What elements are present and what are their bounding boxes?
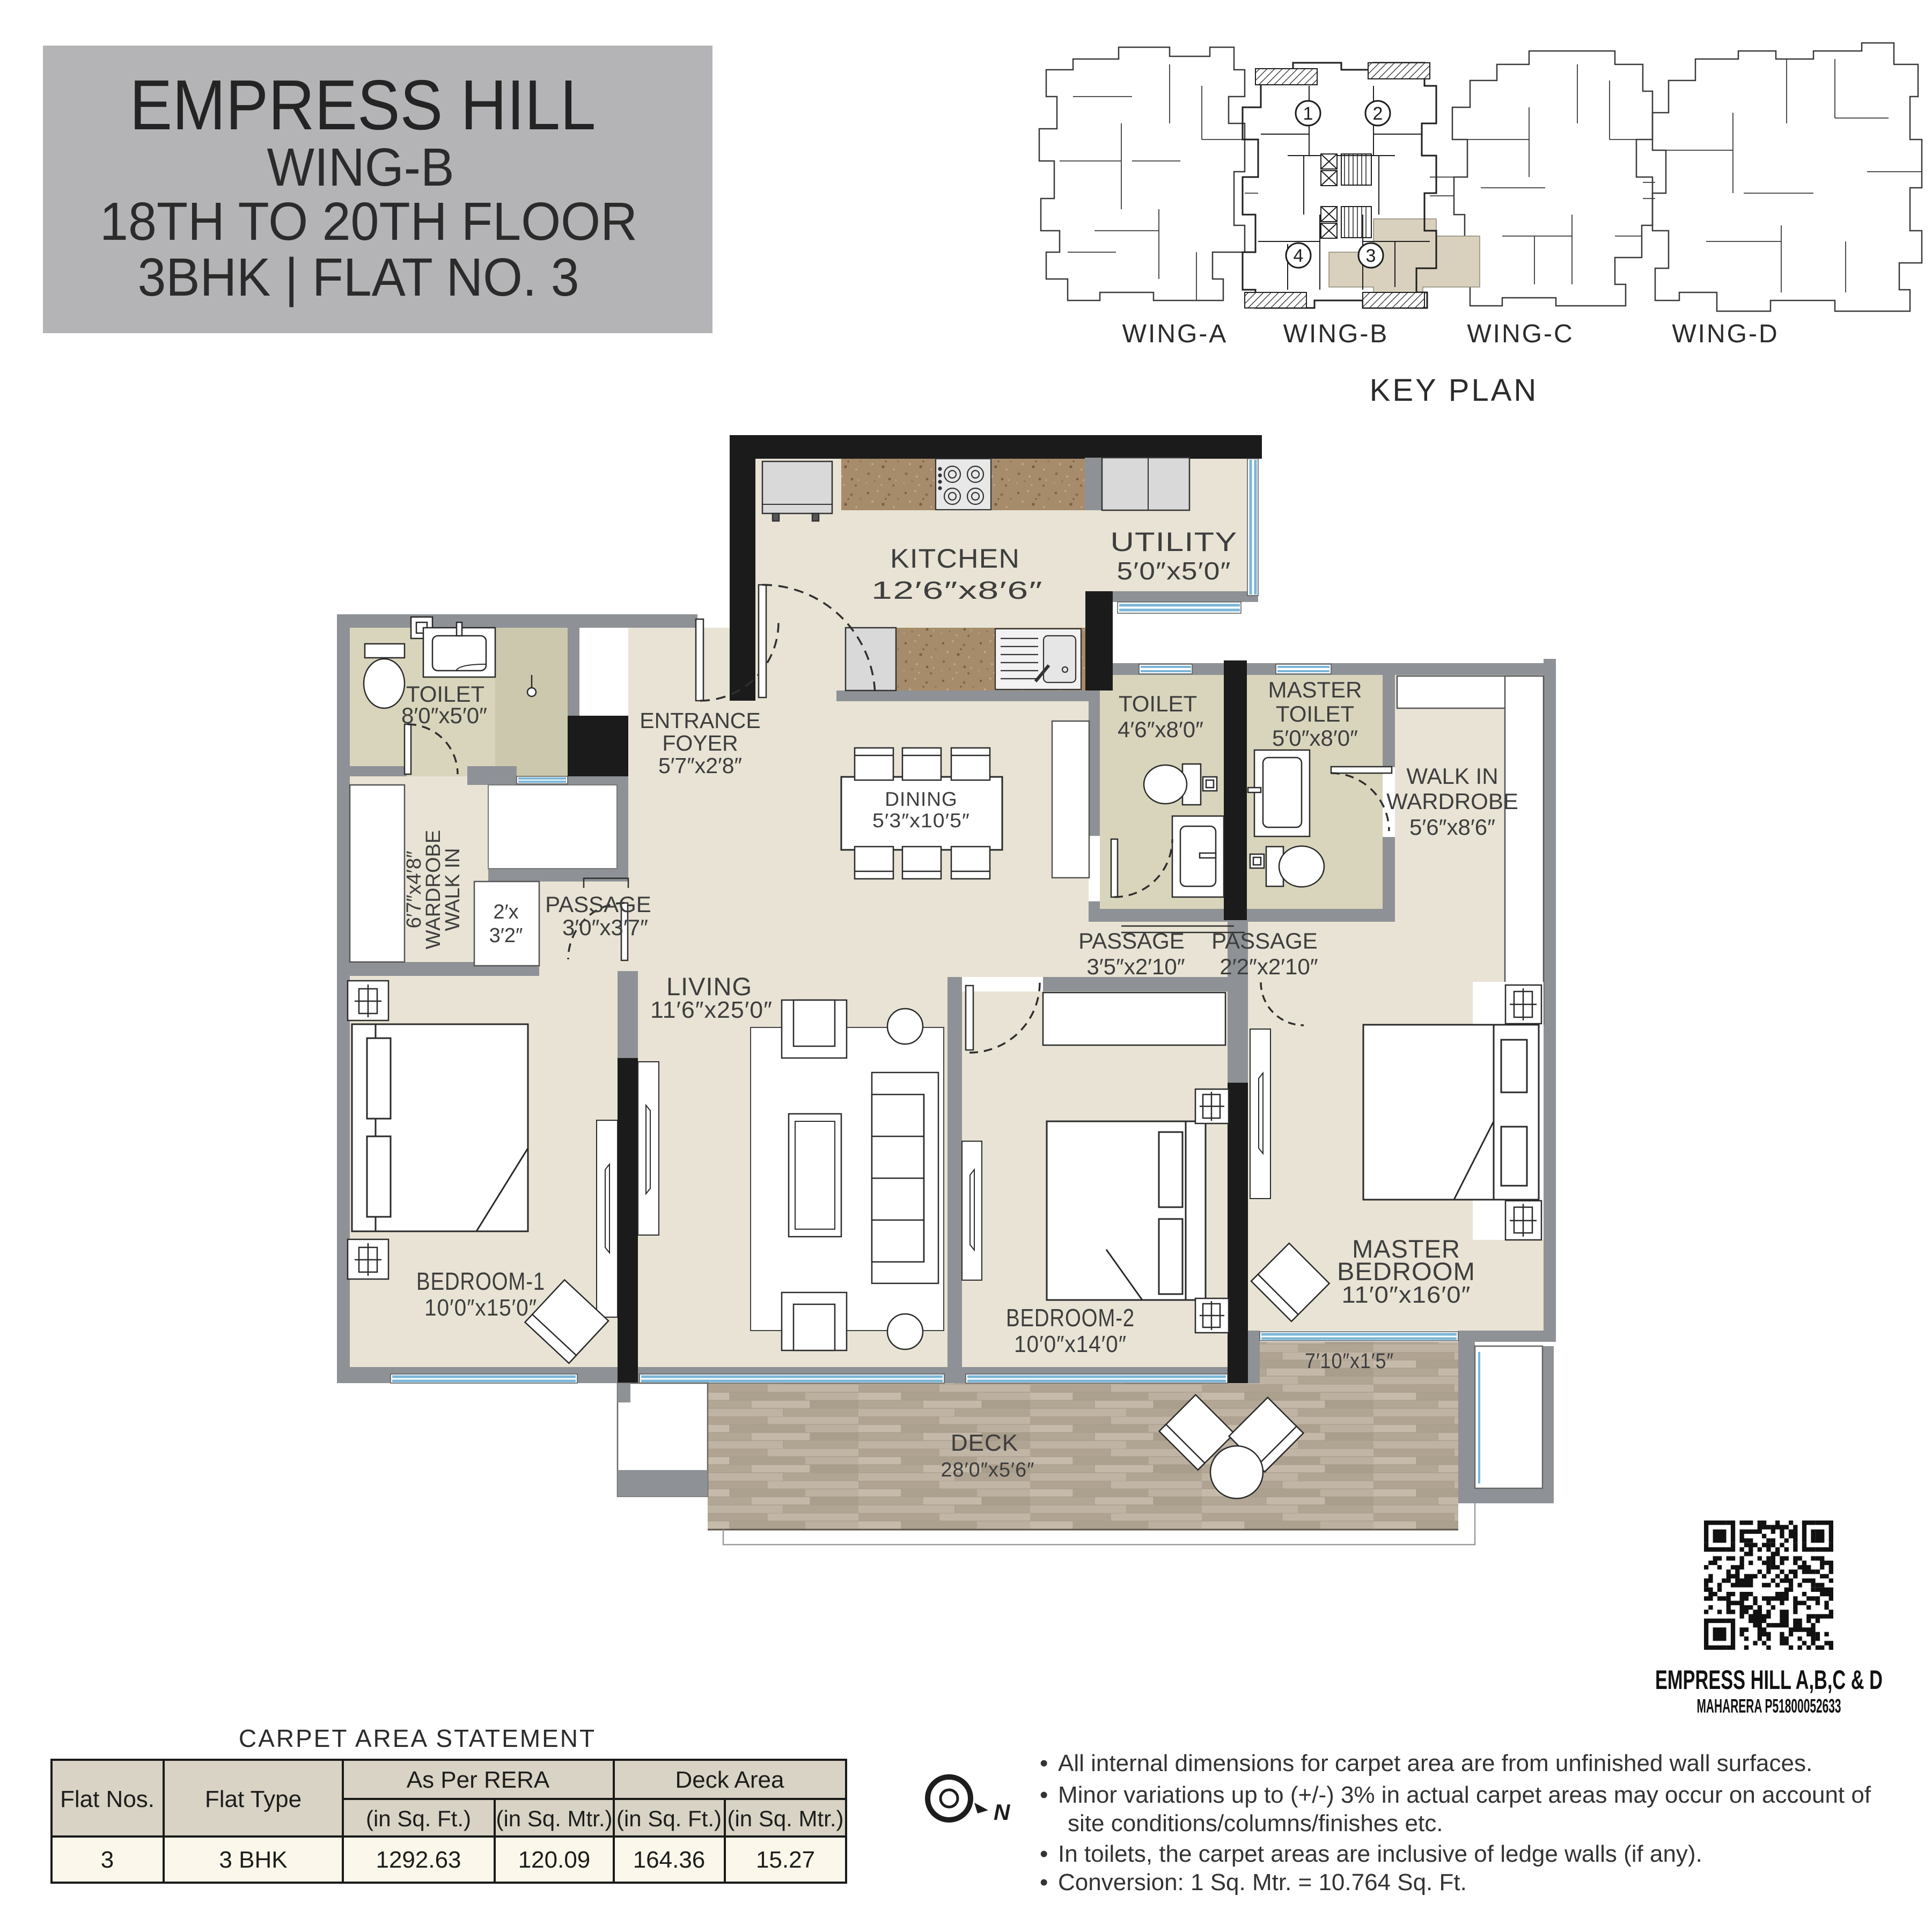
svg-text:3′0″x3′7″: 3′0″x3′7″ <box>562 915 648 940</box>
svg-text:3: 3 <box>101 1847 114 1873</box>
svg-text:6′7″x4′8″: 6′7″x4′8″ <box>403 851 425 929</box>
svg-text:WALK IN: WALK IN <box>1406 763 1498 789</box>
svg-text:CARPET AREA STATEMENT: CARPET AREA STATEMENT <box>239 1724 596 1752</box>
svg-text:MASTER: MASTER <box>1268 677 1362 702</box>
svg-text:FOYER: FOYER <box>662 731 738 755</box>
svg-text:164.36: 164.36 <box>633 1847 706 1873</box>
svg-text:Deck Area: Deck Area <box>675 1767 785 1793</box>
svg-text:•: • <box>1040 1750 1048 1776</box>
svg-text:5′0″x8′0″: 5′0″x8′0″ <box>1272 725 1358 751</box>
svg-text:7′10″x1′5″: 7′10″x1′5″ <box>1305 1349 1394 1373</box>
svg-text:MAHARERA P51800052633: MAHARERA P51800052633 <box>1697 1695 1841 1717</box>
svg-text:2′x: 2′x <box>493 901 518 923</box>
svg-text:3 BHK: 3 BHK <box>219 1847 287 1873</box>
svg-text:15.27: 15.27 <box>756 1847 815 1873</box>
svg-text:EMPRESS HILL A,B,C & D: EMPRESS HILL A,B,C & D <box>1655 1665 1883 1695</box>
svg-text:10′0″x15′0″: 10′0″x15′0″ <box>424 1295 537 1321</box>
svg-text:As Per RERA: As Per RERA <box>407 1767 550 1793</box>
svg-text:•: • <box>1040 1841 1048 1867</box>
svg-text:DECK: DECK <box>951 1430 1018 1456</box>
svg-text:5′0″x5′0″: 5′0″x5′0″ <box>1117 557 1231 585</box>
svg-text:2′2″x2′10″: 2′2″x2′10″ <box>1220 954 1318 979</box>
svg-text:Flat Type: Flat Type <box>205 1786 302 1812</box>
svg-text:5′3″x10′5″: 5′3″x10′5″ <box>872 810 970 832</box>
svg-text:Flat Nos.: Flat Nos. <box>60 1786 155 1812</box>
svg-text:(in Sq. Ft.): (in Sq. Ft.) <box>366 1806 471 1831</box>
svg-text:PASSAGE: PASSAGE <box>1211 928 1318 953</box>
svg-text:WING-B: WING-B <box>267 137 454 197</box>
svg-text:1292.63: 1292.63 <box>376 1847 461 1873</box>
svg-text:5′6″x8′6″: 5′6″x8′6″ <box>1409 814 1495 840</box>
svg-text:WARDROBE: WARDROBE <box>1386 789 1518 814</box>
svg-text:In toilets, the carpet areas a: In toilets, the carpet areas are inclusi… <box>1058 1841 1702 1867</box>
svg-text:ENTRANCE: ENTRANCE <box>640 708 761 733</box>
svg-text:3: 3 <box>1366 246 1376 266</box>
svg-text:KEY PLAN: KEY PLAN <box>1370 373 1539 408</box>
svg-text:WARDROBE: WARDROBE <box>422 830 445 949</box>
svg-text:PASSAGE: PASSAGE <box>1078 928 1185 953</box>
svg-text:TOILET: TOILET <box>1119 691 1197 716</box>
svg-text:(in Sq. Mtr.): (in Sq. Mtr.) <box>496 1806 612 1831</box>
svg-text:BEDROOM-1: BEDROOM-1 <box>416 1267 545 1295</box>
svg-text:120.09: 120.09 <box>518 1847 591 1873</box>
svg-text:3′2″: 3′2″ <box>489 924 523 947</box>
svg-text:WALK IN: WALK IN <box>442 848 464 931</box>
svg-text:28′0″x5′6″: 28′0″x5′6″ <box>941 1459 1035 1481</box>
svg-text:18TH TO 20TH FLOOR: 18TH TO 20TH FLOOR <box>100 192 637 252</box>
svg-text:TOILET: TOILET <box>1276 701 1354 726</box>
svg-text:PASSAGE: PASSAGE <box>545 892 651 917</box>
svg-text:2: 2 <box>1373 104 1383 124</box>
svg-text:BEDROOM-2: BEDROOM-2 <box>1006 1304 1135 1332</box>
svg-text:4′6″x8′0″: 4′6″x8′0″ <box>1118 717 1203 742</box>
svg-text:3BHK | FLAT NO. 3: 3BHK | FLAT NO. 3 <box>138 247 579 307</box>
svg-text:3′5″x2′10″: 3′5″x2′10″ <box>1086 954 1185 979</box>
svg-text:WING-D: WING-D <box>1672 320 1779 348</box>
svg-text:Minor variations up to (+/-) 3: Minor variations up to (+/-) 3% in actua… <box>1058 1782 1871 1808</box>
svg-text:WING-C: WING-C <box>1467 320 1574 348</box>
svg-text:10′0″x14′0″: 10′0″x14′0″ <box>1014 1331 1127 1357</box>
svg-text:11′6″x25′0″: 11′6″x25′0″ <box>650 997 773 1023</box>
svg-text:KITCHEN: KITCHEN <box>890 543 1020 574</box>
svg-text:DINING: DINING <box>885 788 958 810</box>
svg-text:•: • <box>1040 1869 1048 1896</box>
svg-text:11′0″x16′0″: 11′0″x16′0″ <box>1342 1282 1471 1308</box>
svg-text:WING-B: WING-B <box>1283 320 1389 348</box>
svg-text:(in Sq. Ft.): (in Sq. Ft.) <box>616 1806 722 1831</box>
svg-text:8′0″x5′0″: 8′0″x5′0″ <box>401 703 487 728</box>
svg-text:•: • <box>1040 1782 1048 1808</box>
svg-text:12′6″x8′6″: 12′6″x8′6″ <box>871 576 1043 604</box>
svg-text:4: 4 <box>1294 246 1304 266</box>
svg-text:5′7″x2′8″: 5′7″x2′8″ <box>658 753 742 778</box>
svg-text:site conditions/columns/finish: site conditions/columns/finishes etc. <box>1068 1810 1443 1836</box>
svg-text:All internal dimensions for ca: All internal dimensions for carpet area … <box>1058 1750 1812 1776</box>
svg-text:Conversion: 1 Sq. Mtr. = 10.76: Conversion: 1 Sq. Mtr. = 10.764 Sq. Ft. <box>1058 1869 1467 1896</box>
svg-text:N: N <box>994 1799 1011 1825</box>
svg-text:(in Sq. Mtr.): (in Sq. Mtr.) <box>727 1806 843 1831</box>
svg-text:1: 1 <box>1303 104 1313 124</box>
svg-text:UTILITY: UTILITY <box>1111 527 1238 557</box>
svg-text:EMPRESS HILL: EMPRESS HILL <box>130 65 596 144</box>
svg-text:WING-A: WING-A <box>1122 320 1228 348</box>
